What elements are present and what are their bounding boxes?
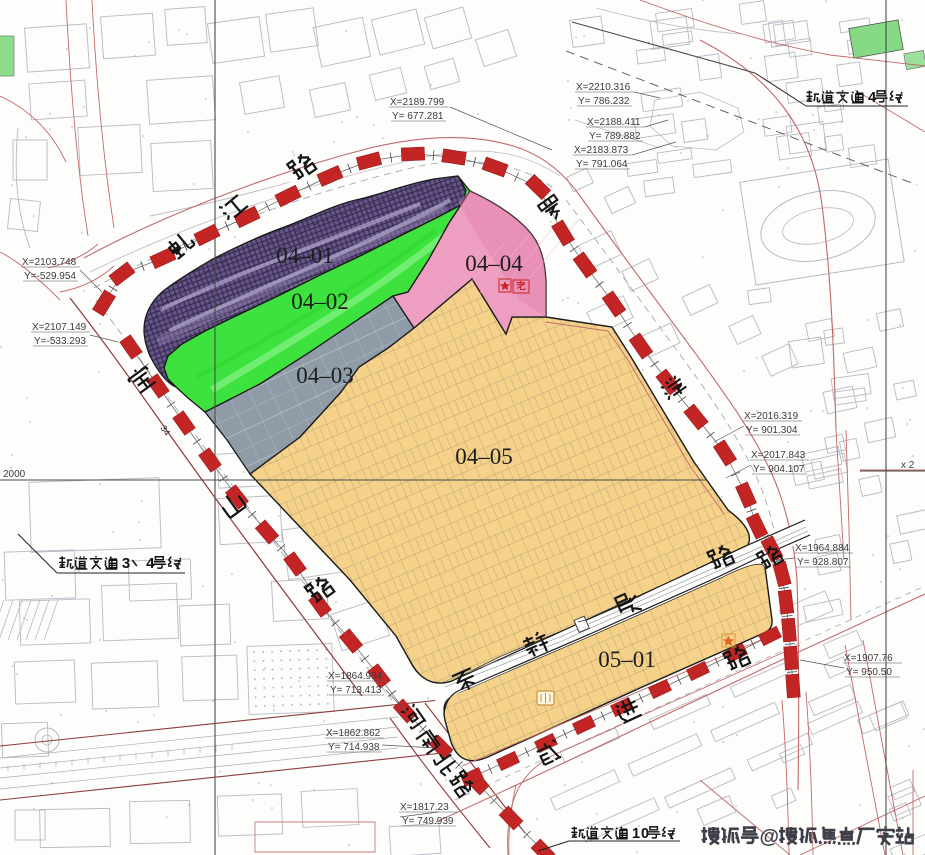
svg-text:x 2: x 2 (901, 460, 915, 471)
svg-text:05–01: 05–01 (598, 647, 656, 672)
svg-text:04–04: 04–04 (465, 251, 523, 276)
svg-text:04–01: 04–01 (276, 243, 334, 268)
svg-text:X=2107.149: X=2107.149 (32, 322, 87, 333)
svg-text:Y= 677.281: Y= 677.281 (392, 111, 444, 122)
svg-text:2000: 2000 (3, 469, 26, 480)
svg-text:X=2017.843: X=2017.843 (751, 450, 806, 461)
svg-text:@: @ (759, 826, 779, 848)
svg-text:Y= 901.304: Y= 901.304 (746, 425, 798, 436)
svg-text:X=2103.748: X=2103.748 (22, 257, 77, 268)
svg-text:04–03: 04–03 (296, 363, 354, 388)
svg-text:Y= 786.232: Y= 786.232 (578, 96, 630, 107)
svg-text:X=1964.884: X=1964.884 (795, 543, 850, 554)
svg-text:Y= 950.50: Y= 950.50 (846, 667, 892, 678)
svg-text:Y= 928.807: Y= 928.807 (797, 557, 849, 568)
svg-text:X=1864.934: X=1864.934 (328, 671, 383, 682)
svg-text:04–02: 04–02 (291, 289, 349, 314)
svg-text:1: 1 (632, 826, 640, 842)
svg-text:X=2188.411: X=2188.411 (587, 117, 641, 128)
svg-text:Y= 904.107: Y= 904.107 (753, 464, 805, 475)
svg-text:X=2183.873: X=2183.873 (574, 145, 629, 156)
svg-text:Y= 714.938: Y= 714.938 (328, 742, 380, 753)
svg-text:X=2189.799: X=2189.799 (390, 97, 445, 108)
svg-text:X=1907.76: X=1907.76 (844, 653, 893, 664)
svg-text:3: 3 (122, 555, 130, 572)
svg-text:X=2210.316: X=2210.316 (576, 82, 631, 93)
svg-text:X=1817.23: X=1817.23 (400, 802, 449, 813)
svg-text:Y= 713.413: Y= 713.413 (330, 685, 382, 696)
svg-text:Y=-529.954: Y=-529.954 (24, 271, 76, 282)
svg-text:X=1862.862: X=1862.862 (326, 728, 381, 739)
svg-text:Y= 791.064: Y= 791.064 (576, 159, 628, 170)
svg-text:Y= 789.882: Y= 789.882 (589, 131, 641, 142)
svg-text:Y=-533.293: Y=-533.293 (34, 336, 86, 347)
svg-text:X=2016.319: X=2016.319 (744, 411, 799, 422)
svg-text:Y= 749.939: Y= 749.939 (402, 816, 454, 827)
svg-text:04–05: 04–05 (455, 444, 513, 469)
